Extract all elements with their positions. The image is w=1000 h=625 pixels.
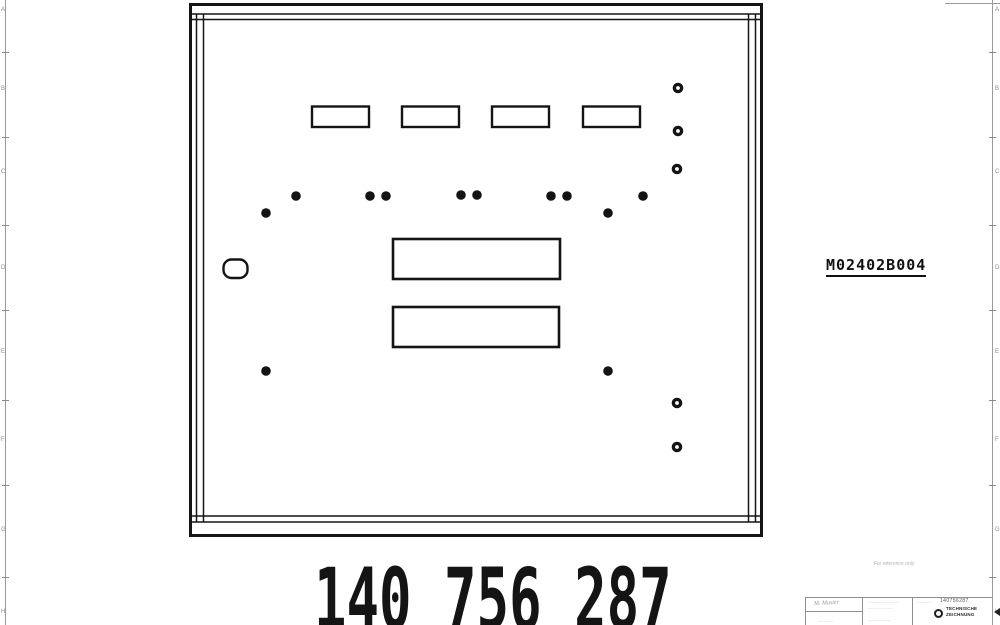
- drawing-sheet: AABBCCDDEEFFGGHH M02402B004 140 756 287 …: [0, 0, 1000, 625]
- zone-letter-right: A: [995, 7, 999, 13]
- title-block-cell-text: ............................: [868, 599, 899, 604]
- zone-tick: [989, 225, 996, 226]
- title-block-divider-2: [912, 597, 913, 625]
- zone-letter-right: F: [995, 437, 999, 443]
- title-block-divider-1: [862, 597, 863, 625]
- zone-tick: [2, 577, 9, 578]
- drawing-number-large: 140 756 287: [314, 558, 672, 625]
- company-name-line2: ZEICHNUNG: [946, 613, 975, 618]
- zone-tick: [989, 400, 996, 401]
- zone-tick: [989, 310, 996, 311]
- zone-letter-left: A: [1, 7, 5, 13]
- zone-letter-right: D: [995, 265, 999, 271]
- zone-letter-left: D: [1, 265, 5, 271]
- zone-letter-left: F: [1, 437, 5, 443]
- watermark-text: For reference only: [856, 561, 932, 567]
- title-block-cell-text: ..............: [916, 599, 932, 604]
- zone-tick: [2, 310, 9, 311]
- zone-letter-right: G: [995, 527, 1000, 533]
- zone-letter-left: G: [1, 527, 6, 533]
- doc-number: 140756287: [940, 599, 969, 604]
- zone-tick: [989, 137, 996, 138]
- zone-letter-left: E: [1, 349, 5, 355]
- zone-tick: [2, 225, 9, 226]
- zone-letter-left: C: [1, 169, 5, 175]
- zone-tick: [2, 400, 9, 401]
- title-block-footer-text: .....................: [868, 617, 891, 622]
- frame-arrow-icon: [994, 608, 1000, 616]
- zone-letter-right: E: [995, 349, 999, 355]
- zone-tick: [989, 52, 996, 53]
- zone-tick: [989, 485, 996, 486]
- title-block-row-line: [805, 611, 862, 612]
- title-block-footer-text: ..............: [818, 618, 834, 623]
- zone-tick: [989, 577, 996, 578]
- zone-tick: [2, 485, 9, 486]
- zone-tick: [2, 52, 9, 53]
- part-number-label: M02402B004: [826, 256, 926, 277]
- zone-letter-left: B: [1, 86, 5, 92]
- title-block-cell-text: .......................: [868, 605, 894, 610]
- right-frame-border: [992, 0, 993, 625]
- top-frame-border: [945, 3, 1000, 4]
- company-name-line1: TECHNISCHE: [946, 607, 977, 612]
- zone-letter-right: C: [995, 169, 999, 175]
- zone-letter-right: B: [995, 86, 999, 92]
- company-logo-icon: [934, 609, 943, 618]
- panel-drawing: [0, 0, 1000, 625]
- zone-letter-left: H: [1, 609, 5, 615]
- zone-tick: [2, 137, 9, 138]
